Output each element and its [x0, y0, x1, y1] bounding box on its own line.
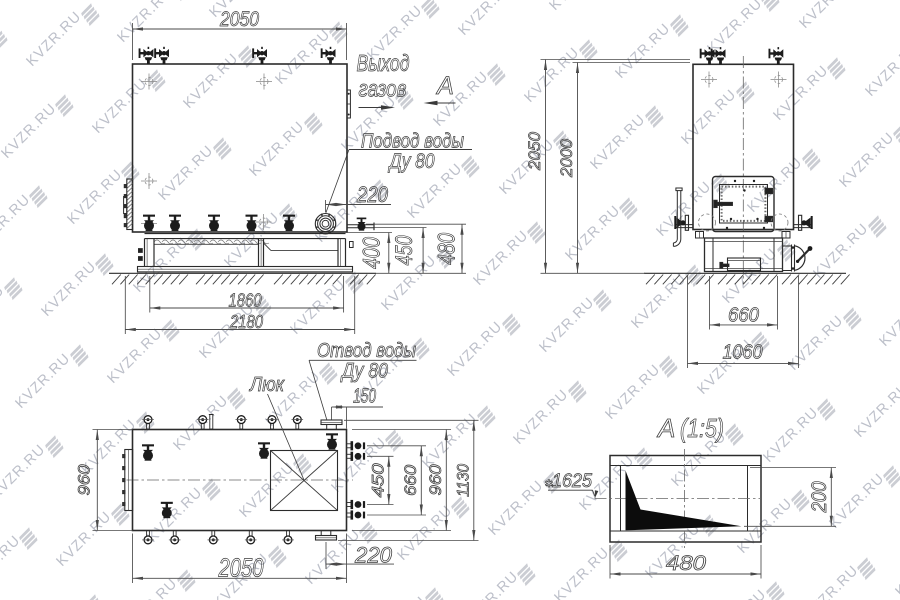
svg-text:KVZR.RU: KVZR.RU: [705, 0, 766, 57]
svg-text:220: 220: [354, 543, 393, 568]
svg-text:1860: 1860: [229, 290, 262, 310]
svg-text:KVZR.RU: KVZR.RU: [877, 289, 900, 350]
svg-text:2050: 2050: [219, 8, 259, 31]
svg-text:KVZR.RU: KVZR.RU: [654, 179, 715, 240]
svg-text:KVZR.RU: KVZR.RU: [288, 277, 349, 338]
svg-text:KVZR.RU: KVZR.RU: [369, 594, 430, 600]
svg-text:KVZR.RU: KVZR.RU: [837, 130, 898, 191]
svg-text:KVZR.RU: KVZR.RU: [156, 143, 217, 204]
svg-text:150: 150: [353, 386, 376, 408]
svg-text:KVZR.RU: KVZR.RU: [90, 76, 151, 137]
svg-text:Выход: Выход: [357, 50, 410, 76]
svg-text:KVZR.RU: KVZR.RU: [863, 39, 900, 100]
svg-text:2000: 2000: [557, 138, 576, 178]
svg-text:KVZR.RU: KVZR.RU: [0, 533, 24, 594]
svg-text:660: 660: [728, 305, 759, 327]
svg-text:2050: 2050: [525, 131, 544, 171]
svg-text:450: 450: [391, 235, 418, 265]
svg-text:KVZR.RU: KVZR.RU: [827, 471, 888, 532]
svg-text:А: А: [656, 413, 675, 443]
svg-text:KVZR.RU: KVZR.RU: [181, 51, 242, 112]
svg-text:KVZR.RU: KVZR.RU: [105, 326, 166, 387]
svg-text:KVZR.RU: KVZR.RU: [0, 192, 34, 253]
svg-text:KVZR.RU: KVZR.RU: [237, 460, 298, 521]
svg-text:KVZR.RU: KVZR.RU: [852, 380, 900, 441]
svg-text:KVZR.RU: KVZR.RU: [811, 221, 872, 282]
svg-text:KVZR.RU: KVZR.RU: [471, 228, 532, 289]
svg-text:KVZR.RU: KVZR.RU: [629, 271, 690, 332]
svg-text:KVZR.RU: KVZR.RU: [613, 21, 674, 82]
svg-text:1130: 1130: [453, 463, 472, 496]
svg-text:KVZR.RU: KVZR.RU: [65, 167, 126, 228]
svg-text:KVZR.RU: KVZR.RU: [786, 313, 847, 374]
svg-text:А: А: [435, 72, 454, 100]
svg-text:(1:5): (1:5): [680, 413, 724, 443]
svg-text:KVZR.RU: KVZR.RU: [797, 0, 858, 32]
svg-text:400: 400: [359, 236, 386, 269]
svg-text:Ду 80: Ду 80: [340, 360, 388, 383]
svg-text:1625: 1625: [552, 471, 592, 492]
svg-text:Люк: Люк: [248, 374, 285, 396]
svg-text:KVZR.RU: KVZR.RU: [522, 45, 583, 106]
svg-text:KVZR.RU: KVZR.RU: [24, 9, 85, 70]
svg-text:KVZR.RU: KVZR.RU: [273, 27, 334, 88]
svg-text:KVZR.RU: KVZR.RU: [420, 411, 481, 472]
svg-text:KVZR.RU: KVZR.RU: [563, 203, 624, 264]
svg-text:KVZR.RU: KVZR.RU: [552, 545, 613, 600]
svg-text:2050: 2050: [218, 552, 264, 582]
svg-text:газов: газов: [359, 76, 407, 102]
svg-text:KVZR.RU: KVZR.RU: [679, 87, 740, 148]
svg-text:KVZR.RU: KVZR.RU: [761, 405, 822, 466]
svg-text:220: 220: [356, 182, 388, 207]
svg-text:KVZR.RU: KVZR.RU: [801, 563, 862, 600]
svg-text:KVZR.RU: KVZR.RU: [445, 319, 506, 380]
svg-text:KVZR.RU: KVZR.RU: [461, 569, 522, 600]
svg-text:KVZR.RU: KVZR.RU: [745, 155, 806, 216]
svg-text:200: 200: [808, 481, 831, 513]
svg-text:KVZR.RU: KVZR.RU: [603, 362, 664, 423]
svg-text:KVZR.RU: KVZR.RU: [456, 0, 517, 39]
svg-text:KVZR.RU: KVZR.RU: [588, 112, 649, 173]
svg-text:KVZR.RU: KVZR.RU: [120, 576, 181, 600]
svg-text:2180: 2180: [229, 312, 263, 332]
svg-text:KVZR.RU: KVZR.RU: [13, 351, 74, 412]
svg-text:1060: 1060: [723, 342, 763, 364]
svg-text:KVZR.RU: KVZR.RU: [115, 0, 176, 46]
svg-text:KVZR.RU: KVZR.RU: [247, 119, 308, 180]
svg-text:KVZR.RU: KVZR.RU: [893, 539, 900, 600]
svg-text:KVZR.RU: KVZR.RU: [54, 509, 115, 570]
svg-text:480: 480: [666, 552, 706, 575]
svg-text:Ду 80: Ду 80: [388, 150, 435, 173]
svg-text:KVZR.RU: KVZR.RU: [39, 259, 100, 320]
svg-text:KVZR.RU: KVZR.RU: [709, 587, 770, 600]
svg-text:KVZR.RU: KVZR.RU: [511, 387, 572, 448]
svg-text:KVZR.RU: KVZR.RU: [0, 101, 60, 162]
svg-text:KVZR.RU: KVZR.RU: [0, 442, 49, 503]
svg-text:KVZR.RU: KVZR.RU: [547, 0, 608, 14]
svg-text:480: 480: [434, 232, 461, 265]
svg-text:KVZR.RU: KVZR.RU: [537, 295, 598, 356]
svg-text:960: 960: [75, 464, 94, 496]
svg-text:450: 450: [368, 463, 387, 498]
svg-text:KVZR.RU: KVZR.RU: [0, 283, 8, 344]
svg-text:KVZR.RU: KVZR.RU: [486, 478, 547, 539]
svg-text:960: 960: [426, 464, 445, 496]
svg-text:KVZR.RU: KVZR.RU: [771, 63, 832, 124]
svg-text:660: 660: [401, 464, 420, 496]
svg-text:KVZR.RU: KVZR.RU: [131, 235, 192, 296]
